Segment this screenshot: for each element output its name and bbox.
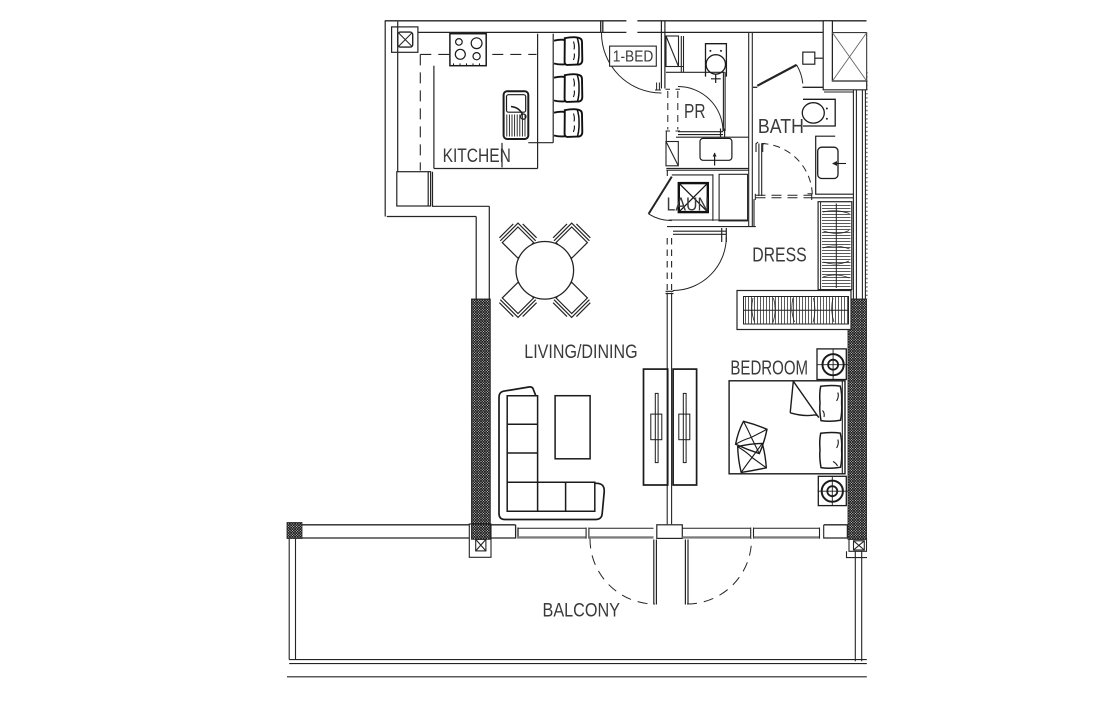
svg-text:BATH: BATH (758, 116, 804, 138)
svg-text:PR: PR (684, 101, 706, 123)
svg-text:1-BED: 1-BED (613, 49, 654, 66)
svg-text:BALCONY: BALCONY (543, 601, 621, 622)
svg-text:KITCHEN: KITCHEN (443, 146, 511, 167)
svg-text:LAUN: LAUN (667, 195, 710, 215)
svg-text:LIVING/DINING: LIVING/DINING (524, 342, 637, 363)
svg-text:DRESS: DRESS (752, 244, 807, 266)
svg-text:BEDROOM: BEDROOM (730, 357, 808, 380)
